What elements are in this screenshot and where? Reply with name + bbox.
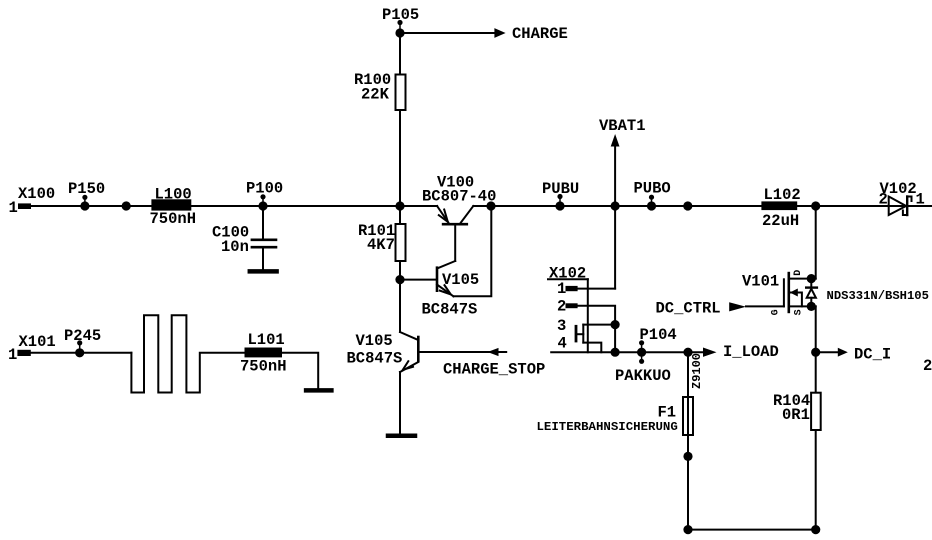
svg-text:F1: F1 <box>658 404 677 422</box>
svg-text:X101: X101 <box>19 333 56 351</box>
svg-text:S: S <box>793 309 804 315</box>
svg-text:4: 4 <box>558 335 567 353</box>
svg-text:LEITERBAHNSICHERUNG: LEITERBAHNSICHERUNG <box>537 420 678 434</box>
svg-text:L101: L101 <box>248 331 285 349</box>
svg-text:CHARGE: CHARGE <box>512 25 568 43</box>
svg-text:0R1: 0R1 <box>782 406 810 424</box>
svg-text:CHARGE_STOP: CHARGE_STOP <box>443 360 545 378</box>
svg-text:V105: V105 <box>356 332 393 350</box>
svg-text:3: 3 <box>557 317 566 335</box>
svg-text:1: 1 <box>557 280 566 298</box>
svg-text:V105: V105 <box>442 271 479 289</box>
svg-text:DC_I: DC_I <box>854 346 891 364</box>
svg-text:PAKKUO: PAKKUO <box>615 367 671 385</box>
svg-text:I_LOAD: I_LOAD <box>723 343 779 361</box>
svg-text:DC_CTRL: DC_CTRL <box>656 300 721 318</box>
svg-text:10n: 10n <box>221 238 249 256</box>
svg-text:2: 2 <box>557 298 566 316</box>
svg-text:1: 1 <box>9 199 18 217</box>
svg-text:1: 1 <box>916 191 925 209</box>
svg-text:NDS331N/BSH105: NDS331N/BSH105 <box>827 289 929 303</box>
svg-text:P150: P150 <box>68 180 105 198</box>
svg-text:2: 2 <box>879 191 888 209</box>
svg-text:Z9100: Z9100 <box>690 353 704 389</box>
svg-text:2: 2 <box>923 357 932 375</box>
svg-text:4K7: 4K7 <box>367 236 395 254</box>
svg-text:22uH: 22uH <box>762 212 799 230</box>
svg-text:22K: 22K <box>361 86 390 104</box>
svg-text:G: G <box>770 309 781 315</box>
svg-text:750nH: 750nH <box>150 210 197 228</box>
svg-text:VBAT1: VBAT1 <box>599 117 646 135</box>
svg-text:V101: V101 <box>742 273 779 291</box>
svg-text:750nH: 750nH <box>240 357 287 375</box>
svg-text:BC847S: BC847S <box>347 349 403 367</box>
svg-text:X100: X100 <box>18 185 55 203</box>
svg-text:BC807-40: BC807-40 <box>422 188 496 206</box>
svg-text:P245: P245 <box>64 327 101 345</box>
svg-text:1: 1 <box>8 346 17 364</box>
svg-text:D: D <box>793 270 804 276</box>
svg-text:L102: L102 <box>764 186 801 204</box>
svg-text:BC847S: BC847S <box>422 300 478 318</box>
svg-text:P104: P104 <box>640 326 677 344</box>
